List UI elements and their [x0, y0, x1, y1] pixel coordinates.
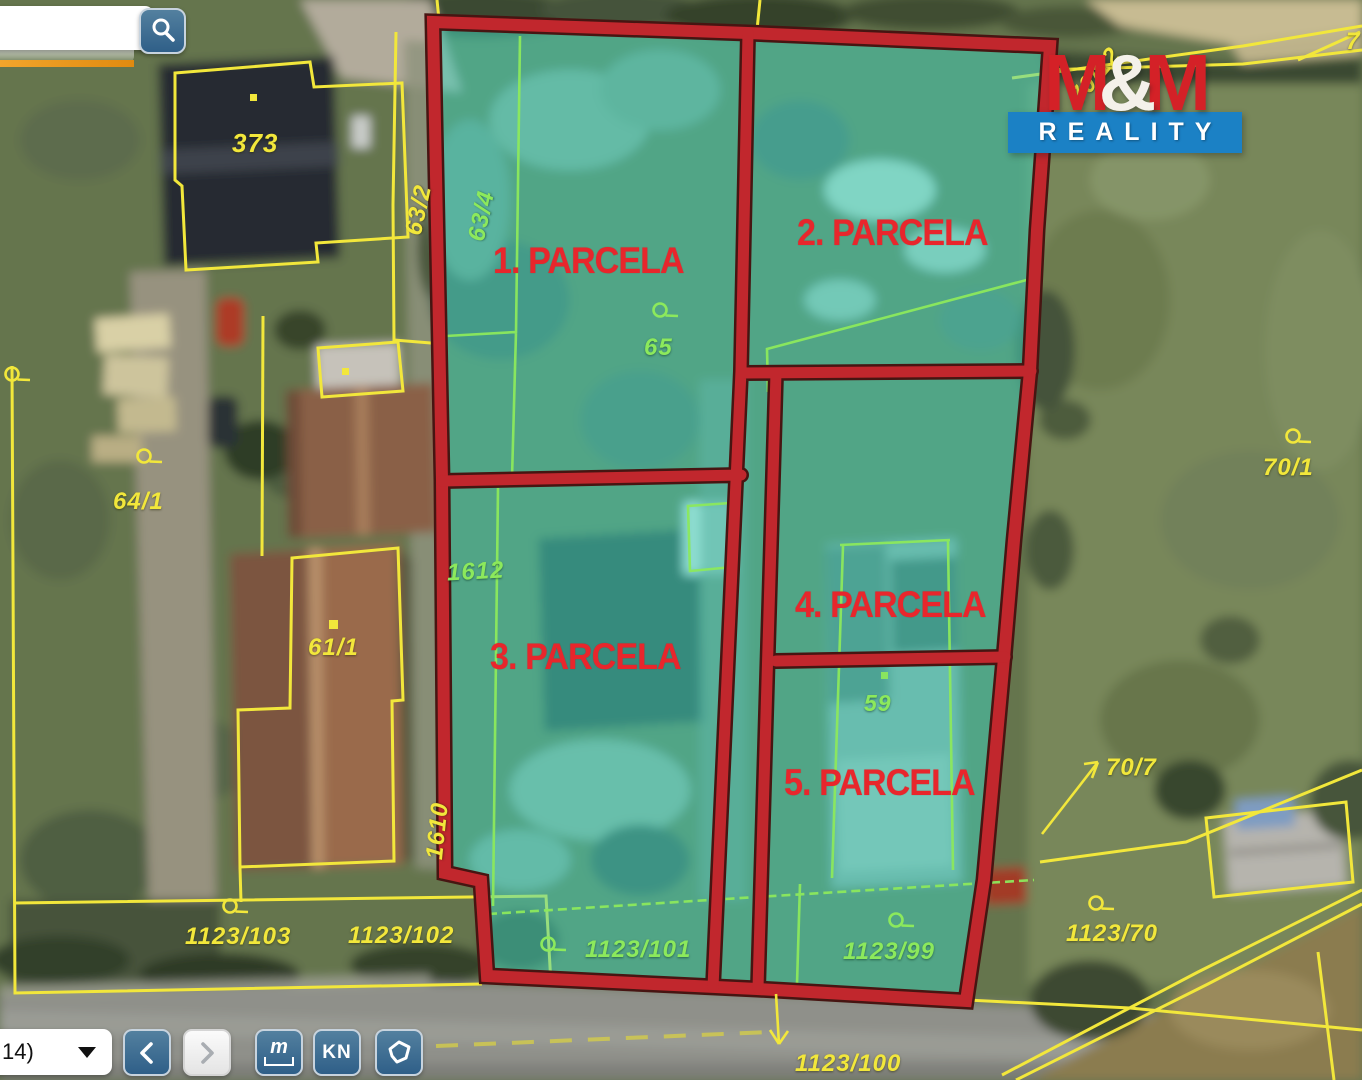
parcel-overlay-label-1: 1. PARCELA [493, 240, 684, 282]
search-icon [149, 16, 177, 44]
logo-accent-bar [0, 60, 134, 67]
parcel-overlay-label-2: 2. PARCELA [797, 212, 988, 254]
forward-button[interactable] [183, 1029, 231, 1076]
cadastral-label-1610: 1610 [421, 801, 455, 861]
map-viewer-screen: 373 63/2 63/4 65 64/1 61/1 1612 1610 59 … [0, 0, 1362, 1080]
cadastral-label-61-1: 61/1 [308, 634, 359, 662]
parcel-overlay-label-3: 3. PARCELA [490, 636, 681, 678]
measure-button[interactable]: m [255, 1029, 303, 1076]
cadastral-label-7: 7 [1346, 28, 1360, 56]
polygon-button[interactable] [375, 1029, 423, 1076]
kn-label: KN [322, 1042, 351, 1064]
cadastral-label-1123-100: 1123/100 [795, 1050, 901, 1078]
search-button[interactable] [139, 8, 186, 54]
back-chevron-icon [134, 1039, 160, 1067]
parcel-overlay-label-5: 5. PARCELA [784, 762, 975, 804]
history-select-value: 14) [0, 1039, 78, 1065]
history-select[interactable]: 14) [0, 1029, 112, 1075]
kn-button[interactable]: KN [313, 1029, 361, 1076]
parcel-overlay-label-4: 4. PARCELA [795, 584, 986, 626]
cadastral-label-65: 65 [644, 334, 673, 362]
search-input[interactable] [0, 6, 154, 50]
cadastral-label-1123-70: 1123/70 [1066, 920, 1158, 948]
cadastral-label-59: 59 [864, 690, 892, 717]
forward-chevron-icon [194, 1039, 220, 1067]
cadastral-label-1123-99: 1123/99 [843, 938, 935, 966]
cadastral-label-1123-102: 1123/102 [348, 922, 454, 950]
back-button[interactable] [123, 1029, 171, 1076]
cadastral-label-1123-103: 1123/103 [185, 923, 291, 951]
cadastral-label-64-1: 64/1 [113, 488, 164, 516]
cadastral-label-373: 373 [232, 128, 278, 159]
measure-label: m [270, 1039, 288, 1055]
polygon-icon [384, 1039, 414, 1067]
cadastral-label-70-1: 70/1 [1263, 454, 1314, 482]
cadastral-label-1123-101: 1123/101 [585, 936, 691, 964]
measure-ruler-icon [264, 1057, 294, 1066]
mm-reality-logo: M&M REALITY [1008, 50, 1242, 153]
logo-mm-text: M&M [1008, 50, 1242, 116]
dropdown-caret-icon [78, 1047, 96, 1058]
map-canvas[interactable] [0, 0, 1362, 1080]
cadastral-label-1612: 1612 [446, 557, 505, 588]
cadastral-label-70-7: 70/7 [1106, 754, 1157, 782]
